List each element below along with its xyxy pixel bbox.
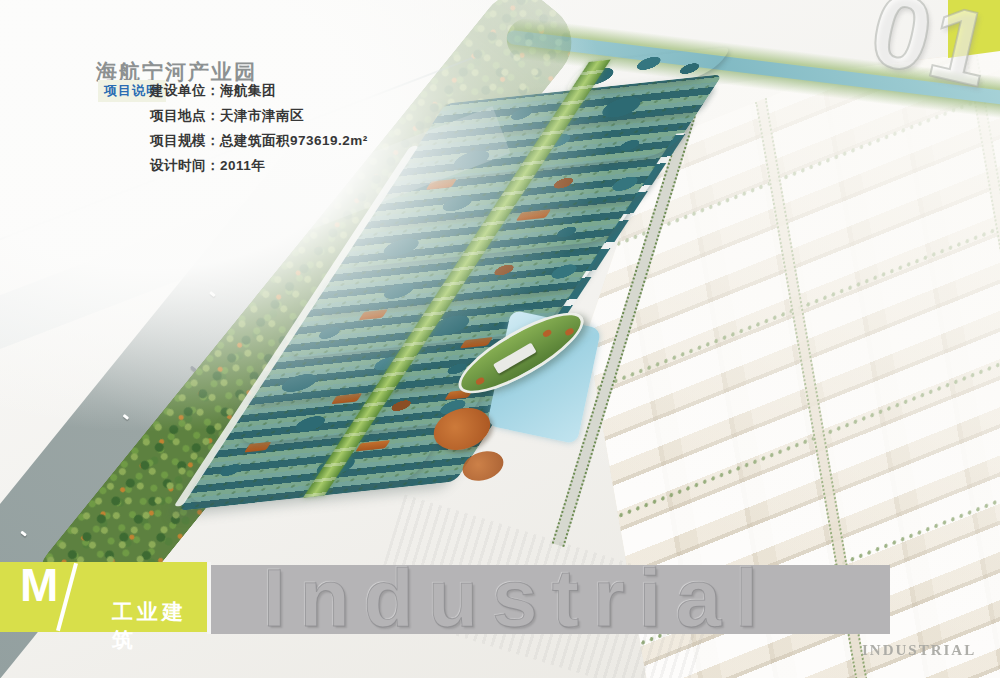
car <box>20 531 27 537</box>
orange-roof <box>564 327 575 337</box>
watermark-text: Industrial <box>263 565 772 634</box>
slash-divider <box>56 563 78 632</box>
info-row: 项目地点：天津市津南区 <box>150 107 304 125</box>
category-letter: M <box>20 558 58 612</box>
title-band: Industrial <box>211 565 890 634</box>
info-row: 设计时间：2011年 <box>150 157 265 175</box>
info-row: 项目规模：总建筑面积973619.2m² <box>150 132 368 150</box>
car <box>123 414 130 420</box>
category-label: 工业建筑 <box>112 598 207 654</box>
orange-roof <box>475 376 486 386</box>
info-row: 建设单位：海航集团 <box>150 82 276 100</box>
orange-roof <box>542 328 553 338</box>
category-box: M 工业建筑 <box>0 562 207 632</box>
leaf-building-slab <box>493 343 537 375</box>
stamp-text: INDUSTRIAL <box>862 642 976 659</box>
presentation-page: 海航宁河产业园 项目说明 建设单位：海航集团 项目地点：天津市津南区 项目规模：… <box>0 0 1000 678</box>
car <box>209 291 216 297</box>
